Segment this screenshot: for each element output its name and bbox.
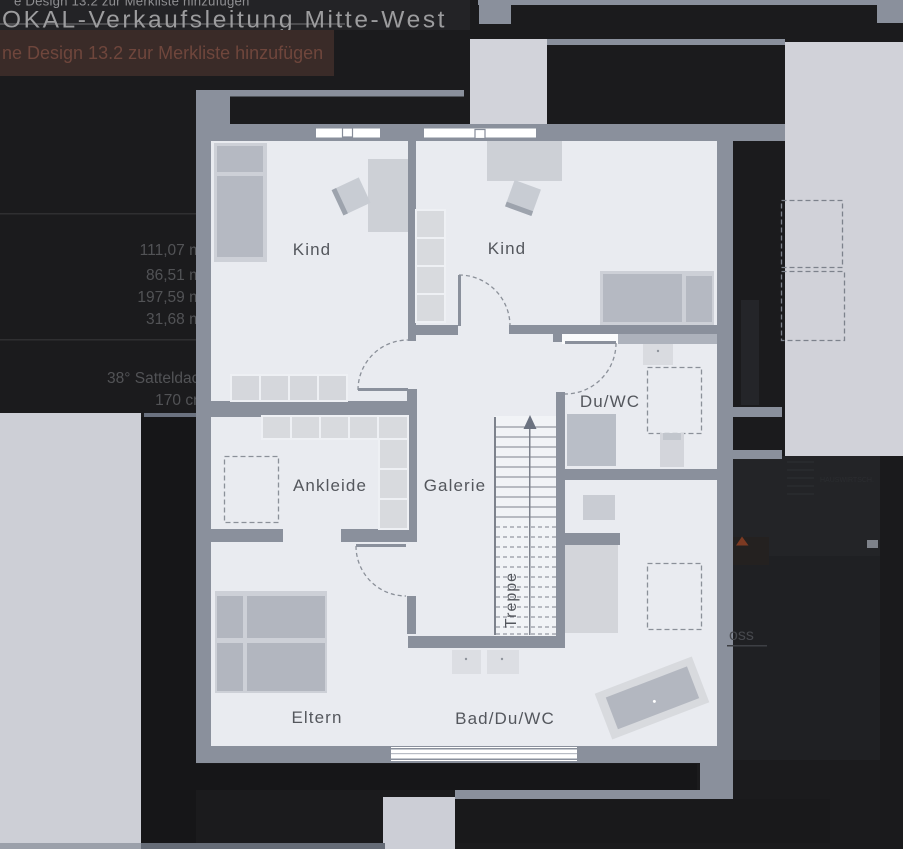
svg-text:OKAL-Verkaufsleitung Mitte-Wes: OKAL-Verkaufsleitung Mitte-West <box>2 7 447 34</box>
svg-text:Ankleide: Ankleide <box>293 476 367 495</box>
svg-text:Treppe: Treppe <box>503 572 520 628</box>
svg-text:ne Design 13.2 zur Merkliste h: ne Design 13.2 zur Merkliste hinzufügen <box>2 43 323 63</box>
svg-text:Eltern: Eltern <box>291 708 342 727</box>
svg-text:38° Satteldach: 38° Satteldach <box>107 370 208 387</box>
svg-text:86,51 m: 86,51 m <box>146 267 202 284</box>
svg-text:111,07 m: 111,07 m <box>140 242 202 259</box>
svg-text:oss: oss <box>729 627 754 644</box>
svg-text:31,68 m: 31,68 m <box>146 311 202 328</box>
svg-text:Du/WC: Du/WC <box>580 392 640 411</box>
svg-text:Kind: Kind <box>293 240 331 259</box>
svg-text:Kind: Kind <box>488 239 526 258</box>
svg-text:Bad/Du/WC: Bad/Du/WC <box>455 709 555 728</box>
svg-text:197,59 m: 197,59 m <box>137 289 202 306</box>
svg-text:Galerie: Galerie <box>424 476 487 495</box>
svg-text:HAUSWIRTSCH.: HAUSWIRTSCH. <box>820 477 874 484</box>
